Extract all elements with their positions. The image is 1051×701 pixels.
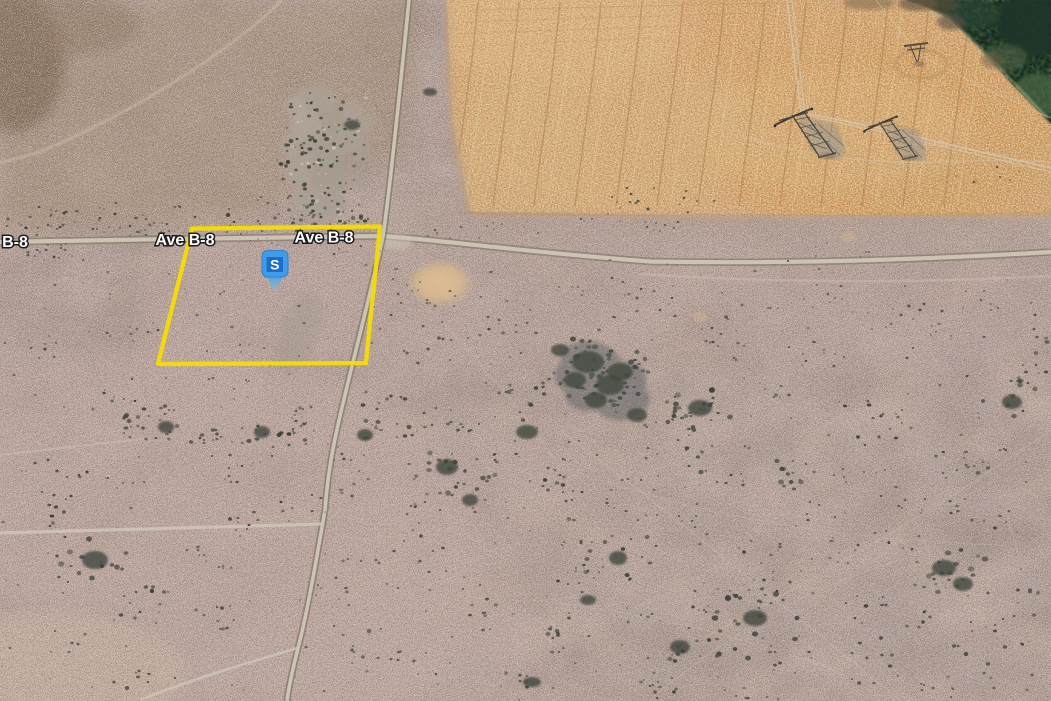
svg-text:B-8: B-8 <box>2 234 28 251</box>
svg-text:Ave B-8: Ave B-8 <box>156 232 215 249</box>
svg-text:Ave B-8: Ave B-8 <box>295 230 354 247</box>
svg-text:S: S <box>270 257 279 273</box>
